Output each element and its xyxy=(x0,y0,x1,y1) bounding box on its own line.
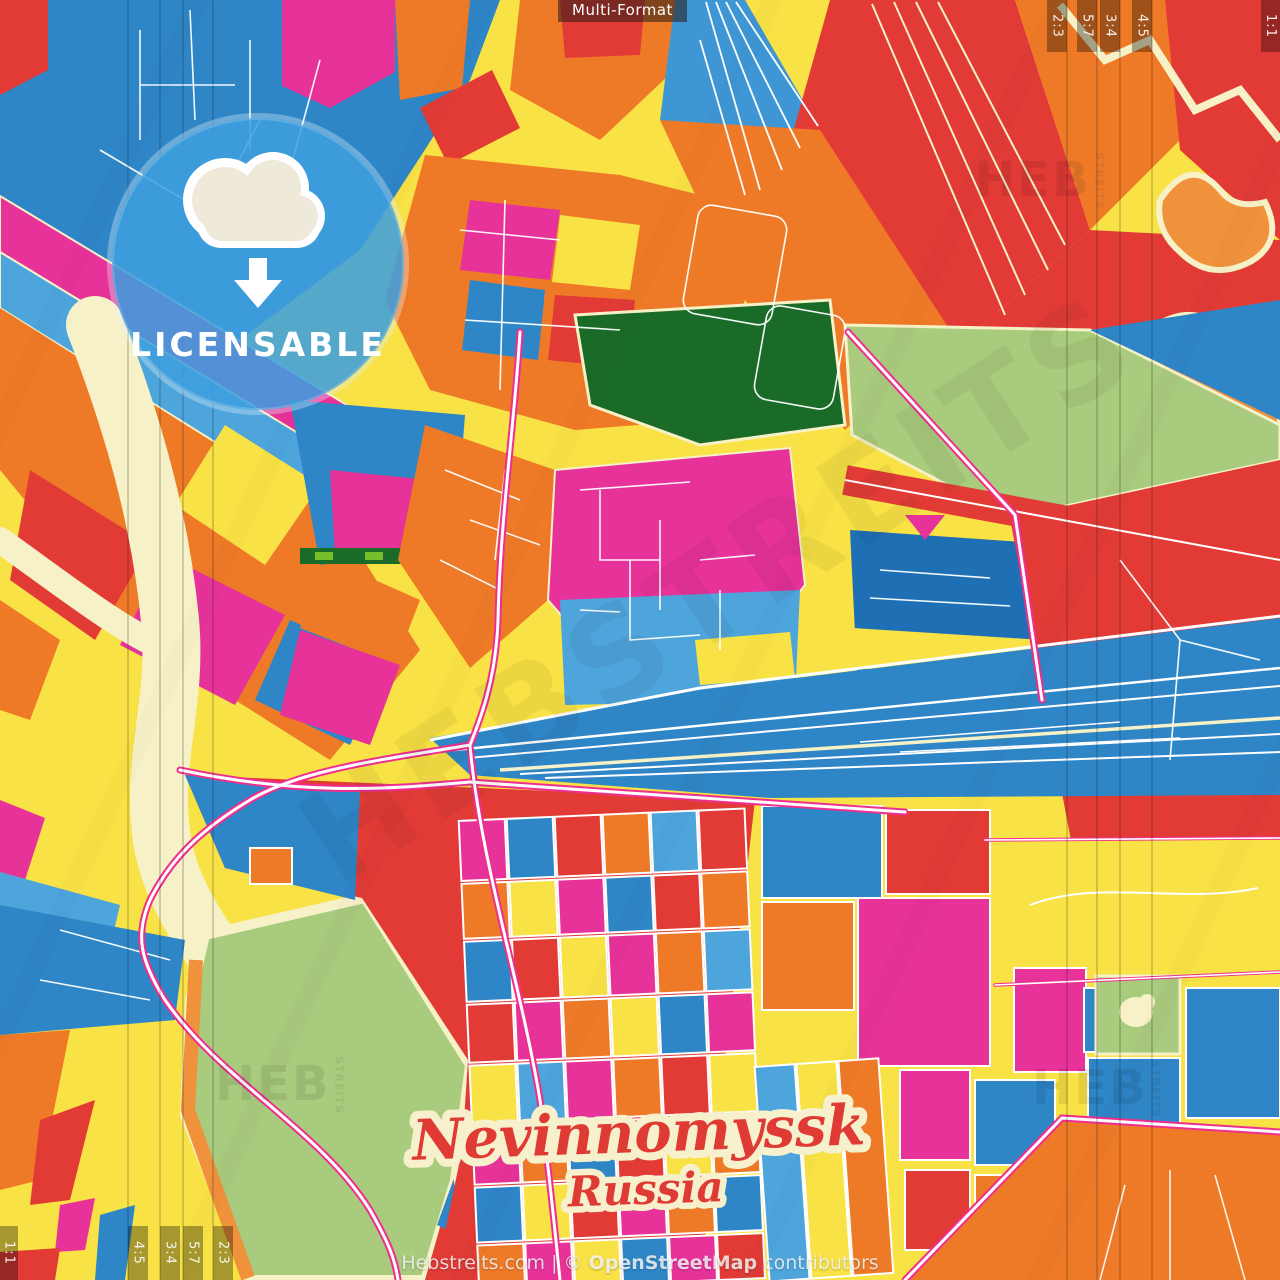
crop-band-4-5-top: 4:5 xyxy=(1132,0,1152,52)
crop-band-1-1-top: 1:1 xyxy=(1261,0,1280,52)
badge-label: LICENSABLE xyxy=(112,325,404,364)
crop-band-label: 2:3 xyxy=(1050,14,1065,38)
footer-separator: | xyxy=(551,1252,557,1274)
crop-band-2-3-bottom: 2:3 xyxy=(213,1226,233,1280)
crop-band-label: 3:4 xyxy=(1103,14,1118,38)
crop-band-label: 5:7 xyxy=(1080,14,1095,38)
crop-band-3-4-bottom: 3:4 xyxy=(160,1226,180,1280)
footer-site-link[interactable]: Hebstreits.com xyxy=(401,1252,545,1274)
crop-band-5-7-top: 5:7 xyxy=(1077,0,1097,52)
crop-band-label: 2:3 xyxy=(216,1241,231,1265)
crop-band-5-7-bottom: 5:7 xyxy=(183,1226,203,1280)
footer-credit: Hebstreits.com | © OpenStreetMap contrib… xyxy=(401,1252,878,1274)
footer-copyright: © xyxy=(564,1252,583,1274)
crop-band-2-3-top: 2:3 xyxy=(1047,0,1067,52)
footer-osm-link[interactable]: OpenStreetMap xyxy=(589,1252,758,1274)
crop-band-label: 4:5 xyxy=(1135,14,1150,38)
crop-band-1-1-bottom: 1:1 xyxy=(0,1226,18,1280)
crop-band-label: 1:1 xyxy=(1263,14,1278,38)
crop-band-3-4-top: 3:4 xyxy=(1100,0,1120,52)
format-chip-label: Multi-Format xyxy=(572,1,673,19)
crop-band-label: 3:4 xyxy=(163,1241,178,1265)
format-chip: Multi-Format xyxy=(558,0,687,22)
footer-suffix: contributors xyxy=(763,1252,879,1274)
crop-band-4-5-bottom: 4:5 xyxy=(128,1226,148,1280)
crop-band-label: 5:7 xyxy=(186,1241,201,1265)
map-poster: HEBSTREITS HEBSTREITS HEBSTREITS HEBSTRE… xyxy=(0,0,1280,1280)
crop-band-label: 4:5 xyxy=(131,1241,146,1265)
licensable-badge[interactable]: LICENSABLE xyxy=(112,118,404,410)
crop-band-label: 1:1 xyxy=(2,1241,17,1265)
cloud-download-icon xyxy=(163,140,353,315)
